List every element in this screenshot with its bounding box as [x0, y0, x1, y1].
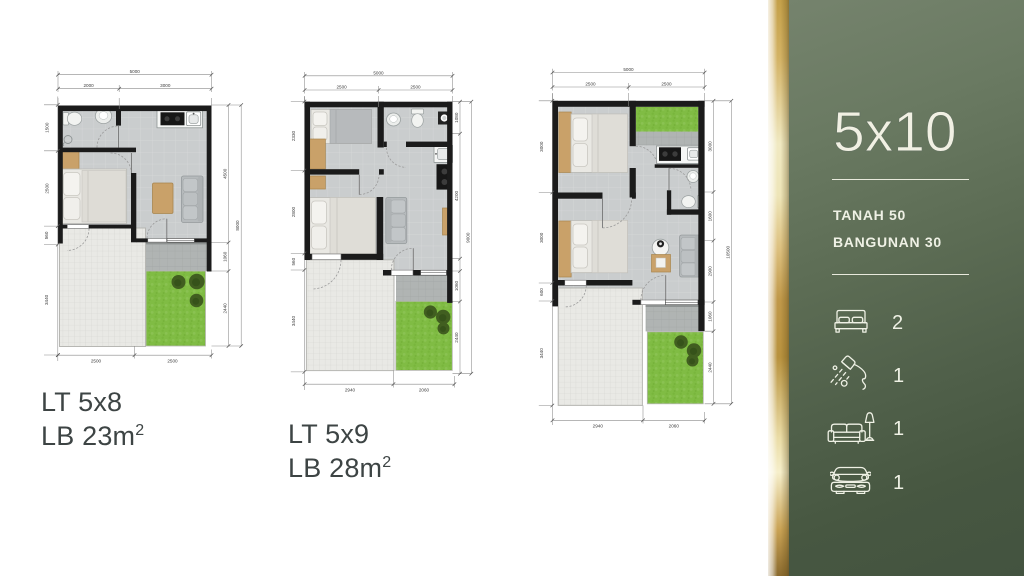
svg-text:2500: 2500: [410, 85, 421, 90]
svg-text:2440: 2440: [223, 303, 228, 314]
svg-text:3440: 3440: [539, 348, 544, 359]
svg-text:5000: 5000: [373, 70, 384, 75]
svg-text:5000: 5000: [623, 67, 634, 72]
svg-text:1060: 1060: [454, 280, 459, 291]
svg-text:3000: 3000: [160, 83, 171, 88]
svg-text:1060: 1060: [708, 311, 713, 322]
svg-text:2500: 2500: [661, 82, 672, 87]
svg-text:600: 600: [539, 288, 544, 296]
svg-text:2940: 2940: [593, 424, 604, 429]
svg-text:3000: 3000: [539, 232, 544, 243]
svg-text:1600: 1600: [708, 211, 713, 222]
svg-text:1500: 1500: [44, 122, 49, 133]
svg-text:2060: 2060: [669, 424, 680, 429]
svg-text:2500: 2500: [45, 183, 50, 194]
svg-text:560: 560: [291, 257, 296, 265]
svg-text:560: 560: [44, 231, 49, 239]
svg-text:2500: 2500: [336, 85, 347, 90]
svg-text:1060: 1060: [223, 251, 228, 262]
svg-text:2900: 2900: [708, 266, 713, 277]
svg-text:2440: 2440: [708, 362, 713, 373]
svg-text:5000: 5000: [130, 69, 141, 74]
svg-text:4200: 4200: [454, 190, 459, 201]
svg-text:2440: 2440: [454, 332, 459, 343]
svg-text:2500: 2500: [585, 82, 596, 87]
svg-text:2940: 2940: [345, 388, 356, 393]
svg-text:3440: 3440: [44, 294, 49, 305]
svg-text:3000: 3000: [539, 141, 544, 152]
svg-text:2800: 2800: [291, 206, 296, 217]
svg-text:2060: 2060: [419, 388, 430, 393]
svg-text:2000: 2000: [83, 83, 94, 88]
svg-text:3440: 3440: [291, 315, 296, 326]
svg-text:8000: 8000: [235, 220, 240, 231]
svg-text:2500: 2500: [167, 359, 178, 364]
svg-text:2500: 2500: [91, 359, 102, 364]
svg-text:3000: 3000: [708, 141, 713, 152]
svg-text:2330: 2330: [291, 130, 296, 141]
svg-text:4500: 4500: [223, 168, 228, 179]
svg-text:1080: 1080: [454, 112, 459, 123]
svg-text:9000: 9000: [466, 232, 471, 243]
svg-text:10500: 10500: [726, 245, 731, 258]
